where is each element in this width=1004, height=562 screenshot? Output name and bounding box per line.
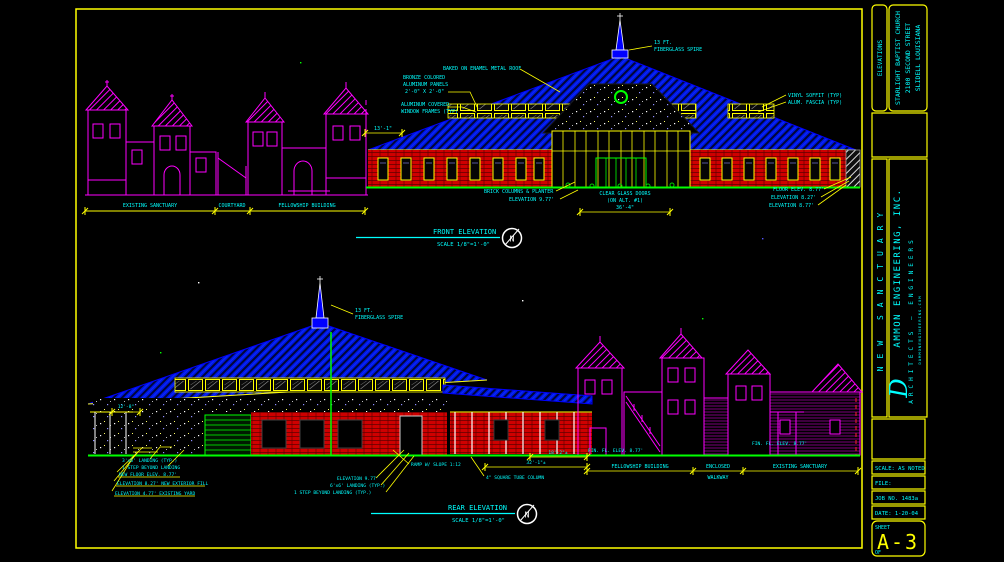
note-frames-1: ALUMINUM COVERED xyxy=(401,102,449,108)
rear-label-enclosed: ENCLOSED xyxy=(706,464,730,470)
rear-title: REAR ELEVATION xyxy=(448,504,507,512)
rear-panel-band xyxy=(175,378,445,392)
titleblock-box-blank2 xyxy=(872,419,925,459)
rear-note-elev-yard: ELEVATION 4.77' EXISTING YARD xyxy=(115,491,195,497)
rear-label-walkway: WALKWAY xyxy=(707,475,728,481)
titleblock-project: NEW SANCTUARY xyxy=(876,205,885,372)
rear-stipple-strip xyxy=(93,398,447,412)
titleblock-of-label: OF xyxy=(875,550,881,556)
rear-fin-fl-a: FIN. FL. ELEV. 8.77' xyxy=(588,448,643,454)
rear-elevation-title: REAR ELEVATION SCALE 1/8"=1'-0" N xyxy=(371,504,537,524)
bronze-panel-band-right xyxy=(728,104,774,118)
rear-spire xyxy=(312,276,328,328)
rear-note-step-b: 1 STEP BEYOND LANDING (TYP.) xyxy=(294,490,371,496)
front-title: FRONT ELEVATION xyxy=(433,228,496,236)
titleblock-job: JOB NO. 1483a xyxy=(875,496,918,502)
walkway-wing xyxy=(443,385,592,454)
titleblock-elevations: ELEVATIONS xyxy=(877,40,884,77)
rollup-door xyxy=(205,415,251,455)
titleblock-sheet-number: A-3 xyxy=(877,530,919,554)
rear-note-new-floor: NEW FLOOR ELEV. 8.77' xyxy=(119,472,177,478)
titleblock-client-1: STARLIGHT BAPTIST CHURCH xyxy=(894,11,902,105)
note-panels-2: ALUMINUM PANELS xyxy=(403,82,448,88)
existing-complex-front-drawing xyxy=(85,80,368,195)
label-courtyard: COURTYARD xyxy=(218,203,245,209)
rear-dim-18: 18'-2"± xyxy=(548,450,568,456)
note-soffit: VINYL SOFFIT (TYP) xyxy=(788,93,842,99)
titleblock-client-2: 2100 SECOND STREET xyxy=(904,23,912,94)
note-elev-877: ELEVATION 8.77' xyxy=(769,203,814,209)
titleblock-firm-web: DAMMONENGINEERING.COM xyxy=(917,295,922,364)
note-elev-827: ELEVATION 8.27' xyxy=(771,195,816,201)
note-fascia: ALUM. FASCIA (TYP) xyxy=(788,100,842,106)
rear-window xyxy=(262,420,286,448)
dim-13-1: 13'-1" xyxy=(374,126,392,132)
rear-fin-fl-b: FIN. FL. ELEV. 8.77' xyxy=(752,441,807,447)
note-doors-2: (ON ALT. #1) xyxy=(607,198,643,204)
rear-note-column: 4" SQUARE TUBE COLUMN xyxy=(486,475,544,481)
rear-note-step-a: 1 STEP BEYOND LANDING xyxy=(122,465,180,471)
note-metal-roof: BAKED ON ENAMEL METAL ROOF xyxy=(443,66,521,72)
north-letter: N xyxy=(525,511,530,520)
rear-dim-32: 32'-1"± xyxy=(526,460,546,466)
north-letter: N xyxy=(510,235,515,244)
rear-note-landing-a: 3'x6' LANDING (TYP.) xyxy=(122,458,177,464)
rear-elevation-drawing: 13 FT. FIBERGLASS SPIRE 12'-8" 3'x6' LAN… xyxy=(88,276,862,524)
note-floor-elev: FLOOR ELEV. 8.77' xyxy=(773,187,824,193)
rear-note-spire-2: FIBERGLASS SPIRE xyxy=(355,315,403,321)
rear-dim-small: 12'-8" xyxy=(118,404,135,410)
note-spire-2: FIBERGLASS SPIRE xyxy=(654,47,702,53)
titleblock-file: FILE: xyxy=(875,481,892,487)
rear-note-landing-b: 6'x6' LANDING (TYP.) xyxy=(330,483,385,489)
front-elevation-drawing: BAKED ON ENAMEL METAL ROOF BRONZE COLORE… xyxy=(356,13,860,248)
front-elevation-title: FRONT ELEVATION SCALE 1/8"=1'-0" N xyxy=(356,228,522,248)
rear-note-ramp: RAMP W/ SLOPE 1:12 xyxy=(411,462,461,468)
rear-label-fellowship: FELLOWSHIP BUILDING xyxy=(611,464,668,470)
rear-window xyxy=(338,420,362,448)
titleblock-date: DATE: 1-20-04 xyxy=(875,511,919,517)
label-fellowship-building: FELLOWSHIP BUILDING xyxy=(278,203,335,209)
rear-note-elev-977: ELEVATION 9.77' xyxy=(337,476,379,482)
note-panels-3: 2'-0" X 2'-0" xyxy=(405,89,444,95)
cad-drawing-viewport: EXISTING SANCTUARY COURTYARD FELLOWSHIP … xyxy=(0,0,1004,562)
overview-dimension: EXISTING SANCTUARY COURTYARD FELLOWSHIP … xyxy=(82,203,368,215)
rear-window xyxy=(300,420,324,448)
rear-note-spire-1: 13 FT. xyxy=(355,308,373,314)
rear-door xyxy=(400,416,422,455)
titleblock-firm-type: ARCHITECTS — ENGINEERS xyxy=(908,236,915,403)
label-existing-sanctuary: EXISTING SANCTUARY xyxy=(123,203,177,209)
rear-label-existing: EXISTING SANCTUARY xyxy=(773,464,827,470)
note-brick-columns: BRICK COLUMNS & PLANTER xyxy=(484,189,554,195)
cad-sheet: EXISTING SANCTUARY COURTYARD FELLOWSHIP … xyxy=(0,0,1004,562)
rear-note-elev-fill: ELEVATION 8.27' NEW EXTERIOR FILL xyxy=(117,481,209,487)
existing-complex-rear-drawing xyxy=(576,328,862,455)
curtain-wall xyxy=(552,131,690,187)
front-title-scale: SCALE 1/8"=1'-0" xyxy=(437,242,490,248)
note-doors-1: CLEAR GLASS DOORS xyxy=(599,191,650,197)
titleblock-box-blank1 xyxy=(872,113,927,157)
dim-36-4: 36'-4" xyxy=(616,205,634,211)
title-block: ELEVATIONS STARLIGHT BAPTIST CHURCH 2100… xyxy=(872,5,927,556)
titleblock-client-3: SLIDELL LOUISIANA xyxy=(914,25,922,92)
rear-title-scale: SCALE 1/8"=1'-0" xyxy=(452,518,505,524)
titleblock-scale: SCALE: AS NOTED xyxy=(875,466,925,472)
note-spire-1: 13 FT. xyxy=(654,40,672,46)
sheet-border xyxy=(76,9,862,548)
note-panels-1: BRONZE COLORED xyxy=(403,75,445,81)
front-spire xyxy=(612,13,628,58)
titleblock-firm-name: AMMON ENGINEERING, INC. xyxy=(893,188,903,347)
note-frames-2: WINDOW FRAMES (TYP) xyxy=(401,109,458,115)
note-brick-elev: ELEVATION 9.77' xyxy=(509,197,554,203)
